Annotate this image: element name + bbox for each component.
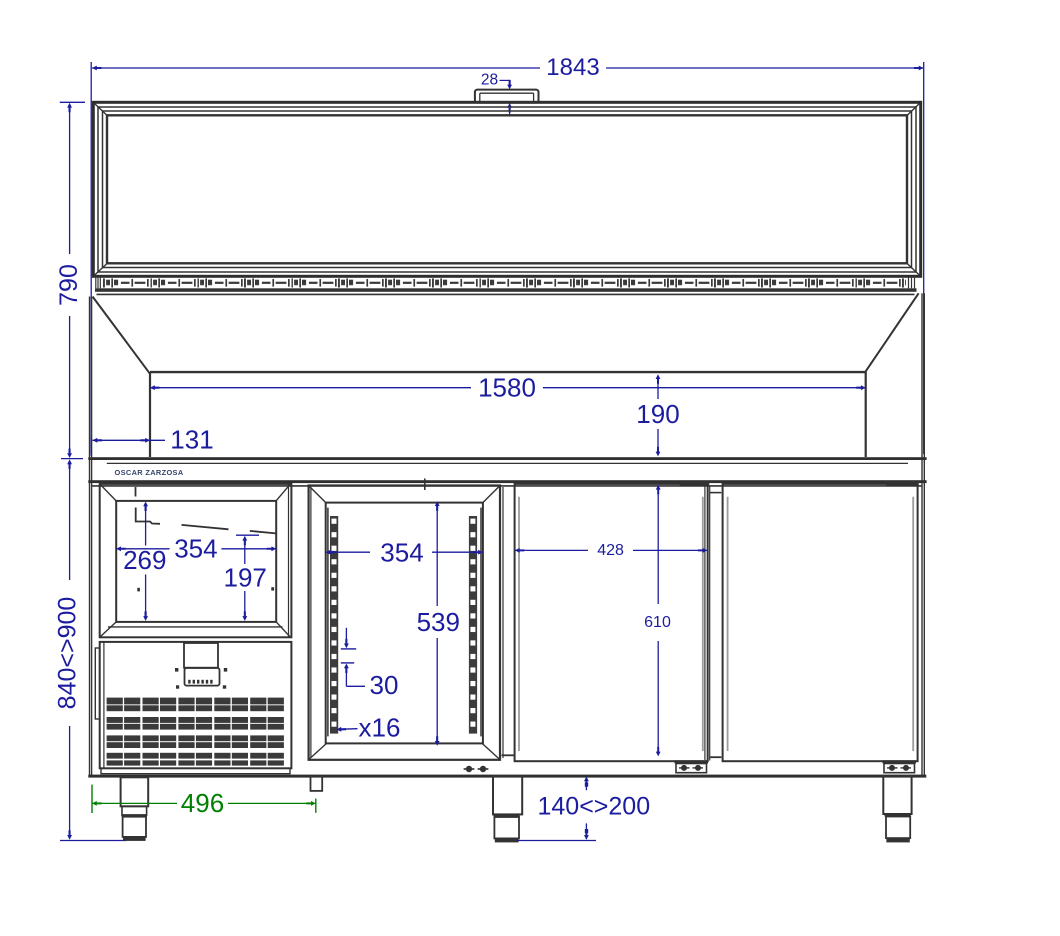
svg-text:539: 539 [417,607,460,637]
svg-text:197: 197 [224,563,267,593]
svg-text:OSCAR ZARZOSA: OSCAR ZARZOSA [115,468,184,477]
svg-text:428: 428 [597,542,624,559]
svg-text:x16: x16 [359,713,401,743]
svg-text:354: 354 [174,534,217,564]
svg-text:269: 269 [123,545,166,575]
svg-text:496: 496 [181,788,224,818]
svg-text:140<>200: 140<>200 [537,793,650,821]
svg-text:30: 30 [370,670,399,700]
svg-text:840<>900: 840<>900 [54,597,82,710]
svg-text:190: 190 [636,399,679,429]
svg-text:1843: 1843 [546,54,599,81]
svg-text:354: 354 [380,537,423,567]
svg-text:28: 28 [481,72,498,89]
svg-text:610: 610 [644,614,671,631]
svg-text:1580: 1580 [478,372,536,402]
svg-text:131: 131 [170,425,213,455]
svg-text:790: 790 [55,264,83,306]
